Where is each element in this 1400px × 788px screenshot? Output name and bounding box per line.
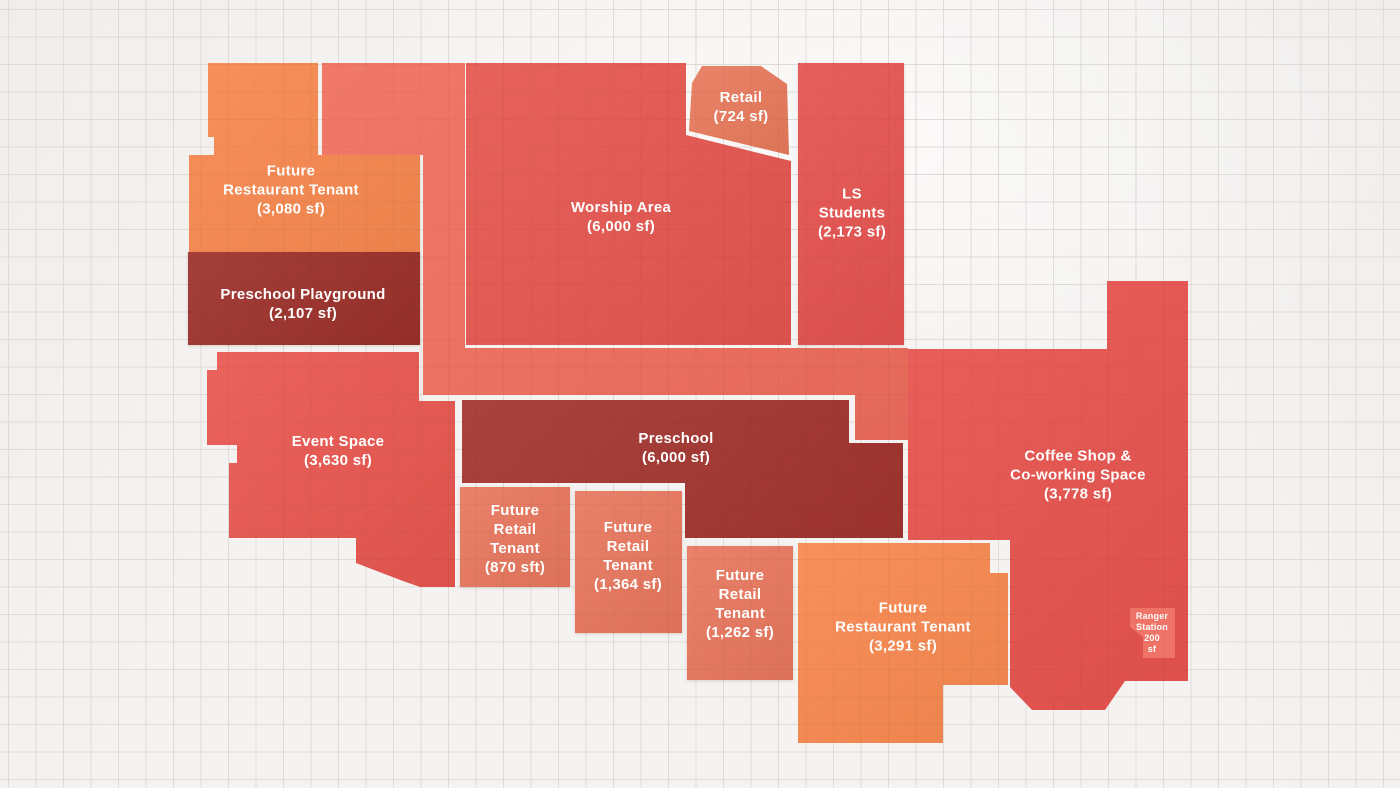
zone-preschool-playground: Preschool Playground (2,107 sf)	[188, 252, 420, 345]
zone-label-line: Co-working Space	[1010, 466, 1146, 485]
zone-label-line: Future	[223, 162, 359, 181]
zone-label: Future Restaurant Tenant (3,080 sf)	[223, 162, 359, 219]
zone-label-line: Restaurant Tenant	[223, 181, 359, 200]
zone-label-line: (3,291 sf)	[835, 637, 971, 656]
zone-label-line: (2,173 sf)	[818, 223, 886, 242]
zone-label-line: Tenant	[594, 556, 662, 575]
zone-label-line: Retail	[714, 88, 769, 107]
zone-label-line: (1,364 sf)	[594, 575, 662, 594]
zone-future-retail-870: Future Retail Tenant (870 sft)	[460, 487, 570, 587]
zone-label-line: (6,000 sf)	[571, 217, 671, 236]
zone-label: Coffee Shop & Co-working Space (3,778 sf…	[1010, 447, 1146, 504]
zone-label-line: Preschool Playground	[220, 285, 385, 304]
zone-future-retail-1364: Future Retail Tenant (1,364 sf)	[575, 491, 682, 633]
zone-label-line: (724 sf)	[714, 107, 769, 126]
zone-label-line: Coffee Shop &	[1010, 447, 1146, 466]
zone-ls-students: LS Students (2,173 sf)	[798, 63, 904, 345]
zone-label-line: Retail	[594, 537, 662, 556]
zone-label-line: Restaurant Tenant	[835, 618, 971, 637]
zone-label: Future Restaurant Tenant (3,291 sf)	[835, 599, 971, 656]
zone-label-line: (3,778 sf)	[1010, 485, 1146, 504]
zone-label-line: LS	[818, 185, 886, 204]
zone-label-line: Retail	[485, 520, 545, 539]
zone-label: Preschool (6,000 sf)	[638, 429, 713, 467]
zone-label-line: (3,080 sf)	[223, 200, 359, 219]
zone-label-line: Future	[594, 518, 662, 537]
zone-label-line: Tenant	[706, 604, 774, 623]
zone-label-line: Future	[485, 501, 545, 520]
zone-label: Retail (724 sf)	[714, 88, 769, 126]
zone-label: Worship Area (6,000 sf)	[571, 198, 671, 236]
zone-label-line: Future	[835, 599, 971, 618]
zone-label: LS Students (2,173 sf)	[818, 185, 886, 242]
zone-label-line: Station	[1136, 622, 1168, 633]
zone-label-line: (6,000 sf)	[638, 448, 713, 467]
zone-label-line: Ranger	[1136, 611, 1168, 622]
zone-label: Future Retail Tenant (870 sft)	[485, 501, 545, 577]
zone-label: Preschool Playground (2,107 sf)	[220, 285, 385, 323]
zone-label: Future Retail Tenant (1,364 sf)	[594, 518, 662, 594]
zone-label-line: Preschool	[638, 429, 713, 448]
zone-label-line: Tenant	[485, 539, 545, 558]
zone-label-line: Event Space	[292, 432, 385, 451]
zone-label-line: Future	[706, 566, 774, 585]
zone-label-line: (870 sft)	[485, 558, 545, 577]
zone-label-line: (2,107 sf)	[220, 304, 385, 323]
zone-label-line: Students	[818, 204, 886, 223]
zone-future-retail-1262: Future Retail Tenant (1,262 sf)	[687, 546, 793, 680]
zone-label-line: Retail	[706, 585, 774, 604]
zone-label-line: (3,630 sf)	[292, 451, 385, 470]
zone-label: Event Space (3,630 sf)	[292, 432, 385, 470]
zone-label: Future Retail Tenant (1,262 sf)	[706, 566, 774, 642]
floorplan-canvas: Future Restaurant Tenant (3,080 sf) Wors…	[0, 0, 1400, 788]
zone-label-line: Worship Area	[571, 198, 671, 217]
zone-label-line: (1,262 sf)	[706, 623, 774, 642]
